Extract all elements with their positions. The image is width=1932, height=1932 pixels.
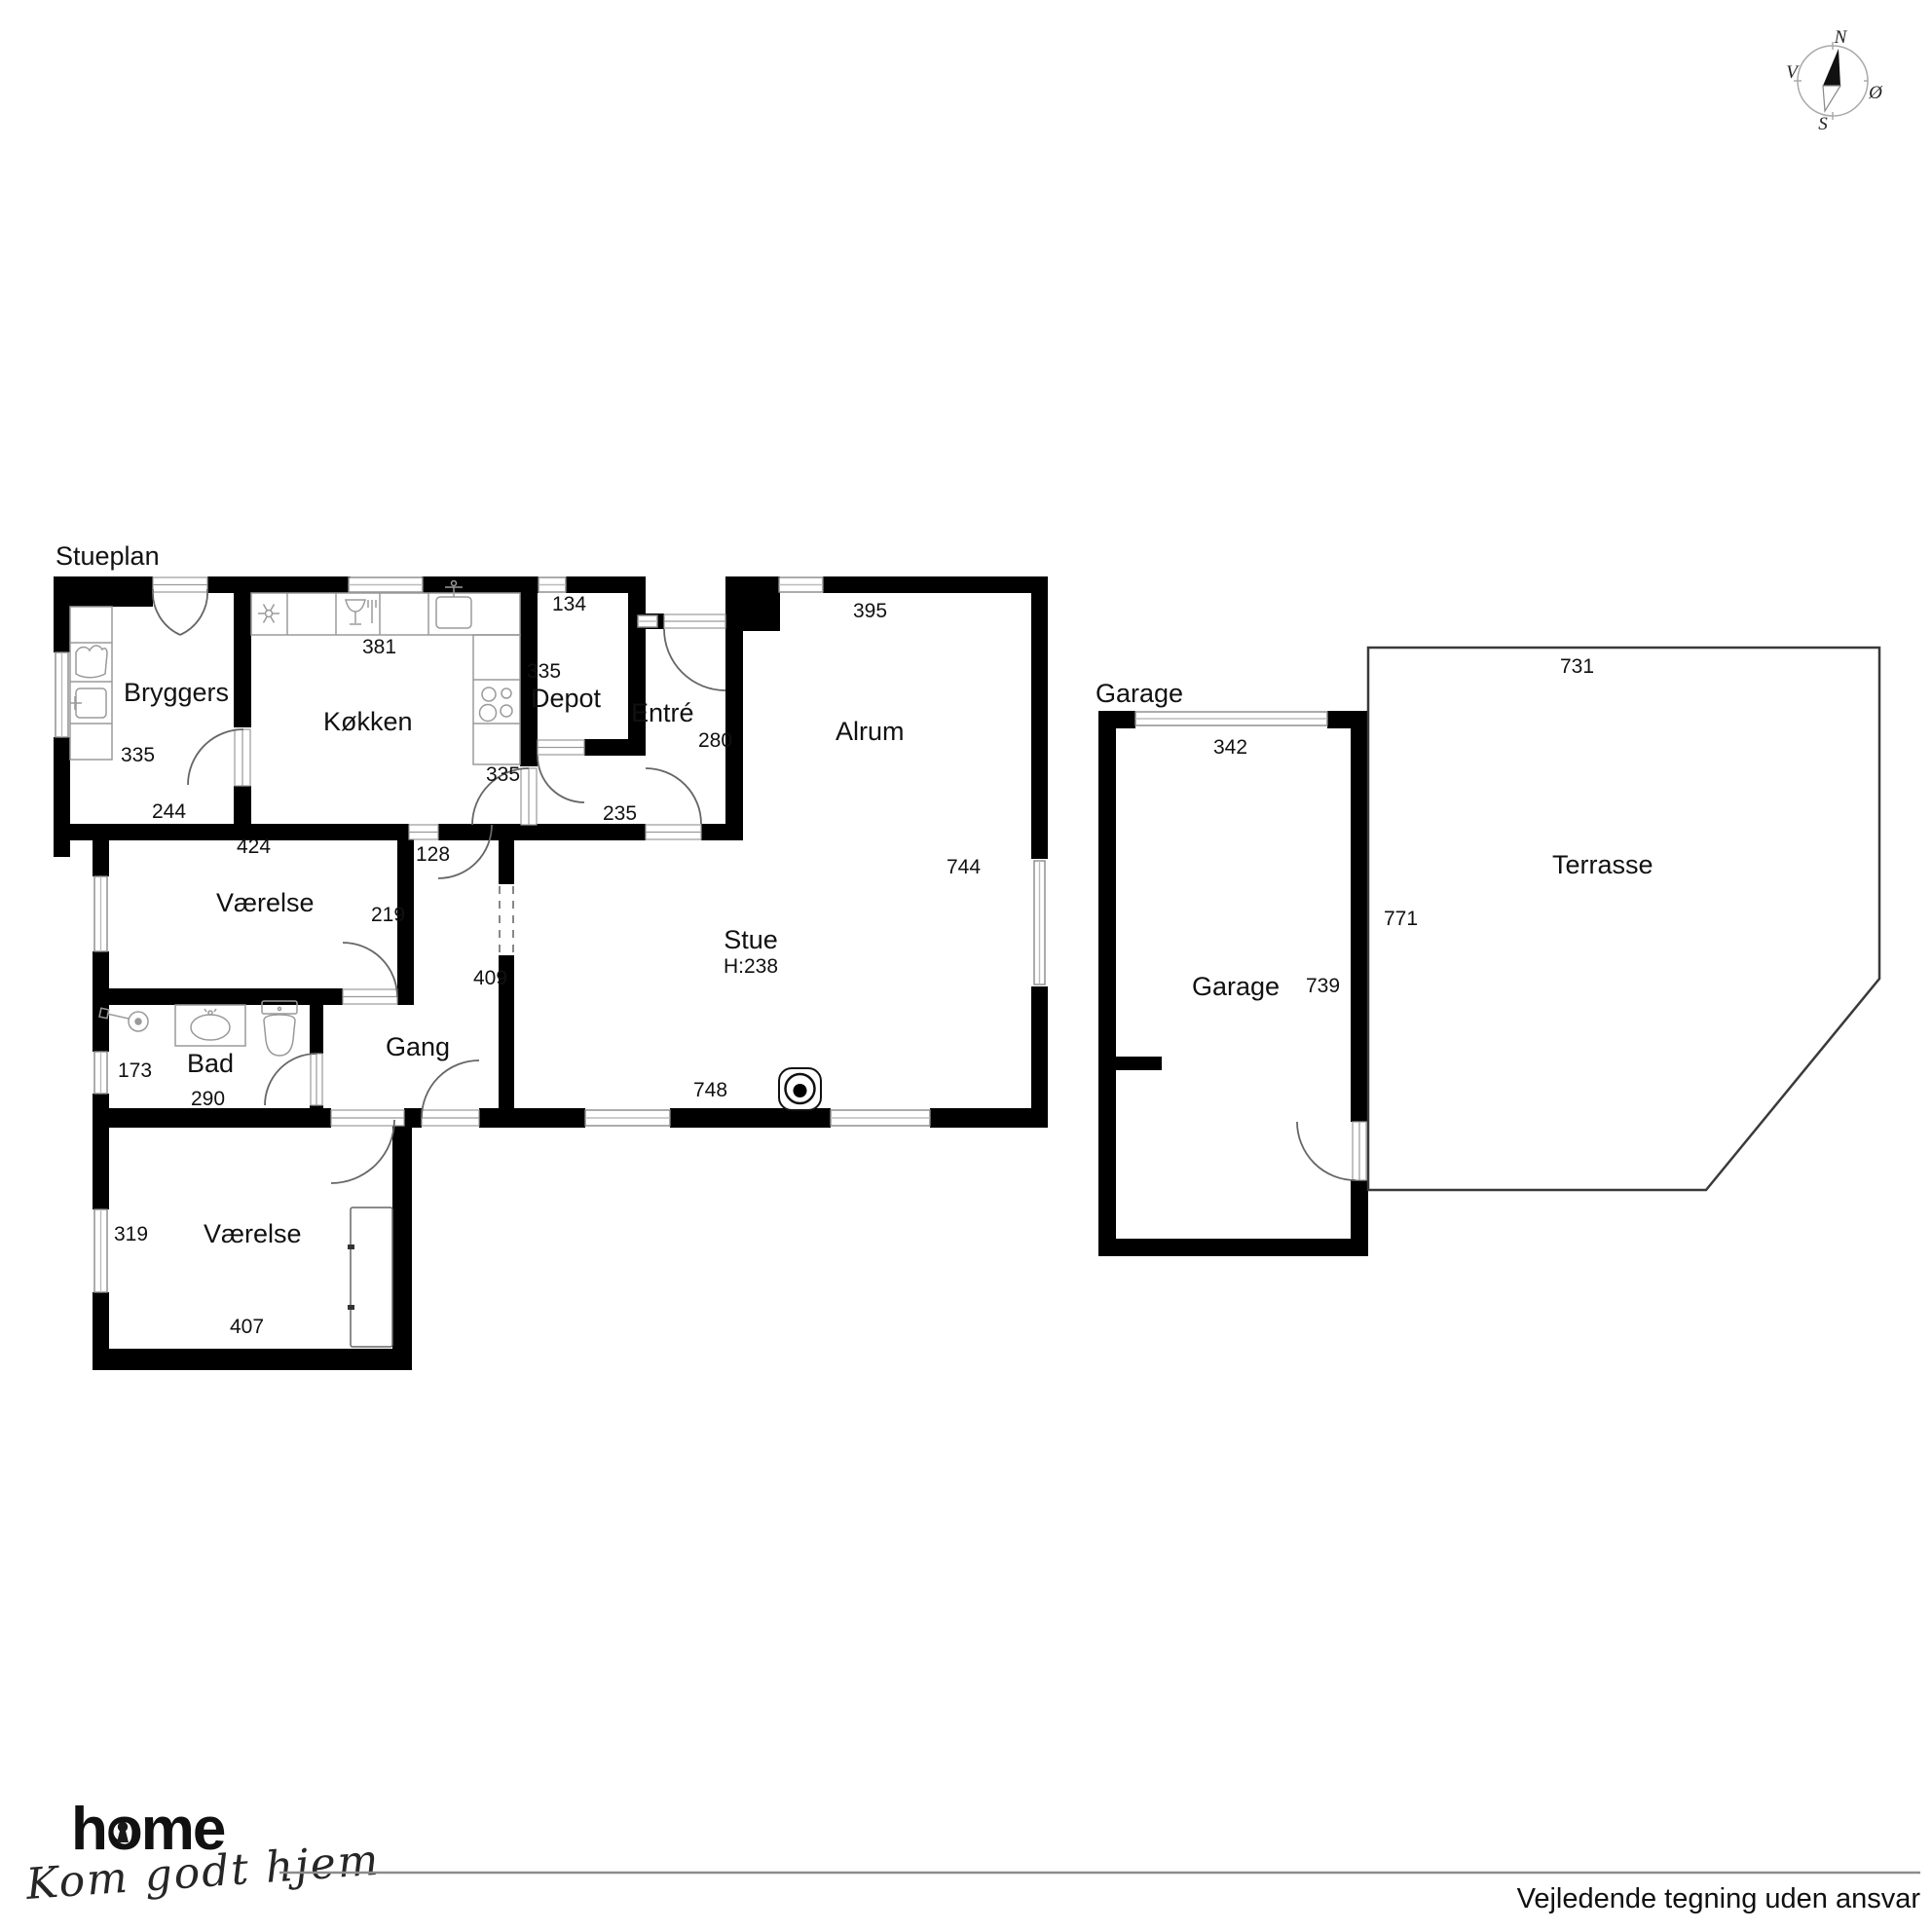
dishwasher-icon xyxy=(346,600,376,624)
kitchen-counter-top xyxy=(251,593,520,635)
door-leaf-bryggers xyxy=(235,729,250,786)
dim-vaerelse1-right: 219 xyxy=(371,904,405,926)
door-arc-entre-bottom xyxy=(646,768,701,824)
window-stue-bottom-right xyxy=(831,1110,930,1126)
room-label-depot: Depot xyxy=(531,684,602,713)
door-leaf-entre-bottom xyxy=(646,825,701,839)
dim-garage-top: 342 xyxy=(1213,736,1247,759)
window-vaerelse2-left xyxy=(94,1209,107,1292)
dim-vaerelse1-top: 424 xyxy=(237,836,271,858)
door-leaf-vaerelse2 xyxy=(331,1110,404,1126)
vanity-sink-icon xyxy=(175,1005,245,1046)
door-arc-front-right xyxy=(180,589,207,635)
compass-needle-south xyxy=(1823,86,1840,111)
dim-vaerelse2-bottom: 407 xyxy=(230,1316,264,1338)
door-leaf-kokken xyxy=(521,768,537,825)
floorplan-image: Stueplan Garage Bryggers 335 244 Køkken … xyxy=(0,0,1932,1932)
garage-section-title: Garage xyxy=(1096,679,1183,708)
compass: N V Ø S xyxy=(1786,27,1883,134)
labels: Stueplan Garage Bryggers 335 244 Køkken … xyxy=(56,541,1653,1338)
dim-garage-right: 771 xyxy=(1384,908,1418,930)
room-label-kokken: Køkken xyxy=(323,707,413,736)
page-title: Stueplan xyxy=(56,541,160,571)
dim-gang-door: 128 xyxy=(416,843,450,866)
door-leaf-garage xyxy=(1353,1122,1366,1180)
dim-stue-bottom: 748 xyxy=(693,1079,727,1101)
room-label-stue: Stue xyxy=(724,925,778,954)
window-alrum-top xyxy=(779,577,823,592)
dim-garage-width: 739 xyxy=(1306,975,1340,997)
compass-needle-north xyxy=(1823,49,1840,86)
window-vaerelse1-left xyxy=(94,876,107,951)
door-leaf-depot xyxy=(538,740,584,755)
window-stue-bottom-left xyxy=(585,1110,670,1126)
laundry-basket-icon xyxy=(76,646,107,678)
door-arc-vaerelse2 xyxy=(331,1120,394,1183)
door-leaf-gang-bottom xyxy=(422,1110,479,1126)
room-label-vaerelse1: Værelse xyxy=(216,888,315,917)
compass-s: S xyxy=(1818,114,1828,134)
dim-terrasse-top: 731 xyxy=(1560,655,1594,678)
dim-alrum-right: 744 xyxy=(947,856,981,878)
dim-kokken-door: 335 xyxy=(486,763,520,786)
window-alrum-right xyxy=(1034,861,1045,985)
stove-icon xyxy=(480,687,513,722)
garage-port xyxy=(1135,712,1327,725)
logo-keyhole-circle xyxy=(118,1822,128,1832)
compass-n: N xyxy=(1834,27,1848,48)
disclaimer-text: Vejledende tegning uden ansvar xyxy=(1517,1883,1921,1914)
door-arc-bad xyxy=(265,1054,316,1105)
door-arc-front-left xyxy=(153,589,180,635)
opening-dashed xyxy=(498,884,515,955)
dim-gang-right: 409 xyxy=(473,967,507,989)
door-arc-depot xyxy=(538,756,584,802)
door-arc-gang-bottom xyxy=(422,1060,479,1118)
dim-entre-right: 280 xyxy=(698,729,732,752)
dim-depot-left: 335 xyxy=(527,660,561,683)
window-kokken-top xyxy=(349,577,423,592)
window-bryggers-left xyxy=(56,652,68,737)
dim-entre-bottom: 235 xyxy=(603,802,637,825)
room-label-bad: Bad xyxy=(187,1049,234,1078)
toilet-icon xyxy=(262,1001,297,1056)
door-arc-garage xyxy=(1297,1122,1356,1180)
door-leaf-vaerelse1 xyxy=(343,989,397,1004)
door-leaf-gang-128 xyxy=(409,825,438,839)
dim-bryggers-left: 335 xyxy=(121,744,155,766)
stue-ceiling-height: H:238 xyxy=(724,955,778,978)
kitchen-counter-right xyxy=(473,635,520,764)
room-label-gang: Gang xyxy=(386,1032,450,1061)
wardrobe-icon xyxy=(348,1207,392,1347)
dim-alrum-top: 395 xyxy=(853,600,887,622)
dim-kokken-top: 381 xyxy=(362,636,396,658)
dim-vaerelse2-left: 319 xyxy=(114,1223,148,1245)
door-leaf-front xyxy=(153,577,207,592)
dim-bryggers-bottom: 244 xyxy=(152,800,186,823)
room-label-alrum: Alrum xyxy=(836,717,905,746)
room-label-bryggers: Bryggers xyxy=(124,678,229,707)
compass-o: Ø xyxy=(1868,83,1883,103)
dim-depot-top: 134 xyxy=(552,593,586,615)
extractor-fan-icon xyxy=(258,605,279,623)
floorplan-page: Stueplan Garage Bryggers 335 244 Køkken … xyxy=(0,0,1932,1932)
window-entre-top xyxy=(638,615,657,627)
door-leaves xyxy=(153,577,1366,1180)
dim-bad-left: 173 xyxy=(118,1059,152,1082)
room-label-terrasse: Terrasse xyxy=(1552,850,1653,879)
room-label-garage: Garage xyxy=(1192,972,1280,1001)
door-leaf-bad xyxy=(311,1054,322,1105)
room-label-entre: Entré xyxy=(631,698,694,727)
door-arc-entre-top xyxy=(664,629,725,690)
window-depot-top xyxy=(539,577,566,592)
terrasse-outline xyxy=(1368,648,1879,1190)
door-leaf-entre-top xyxy=(664,614,725,628)
room-label-vaerelse2: Værelse xyxy=(204,1219,302,1248)
bryggers-sink-icon xyxy=(70,688,106,718)
bryggers-counter xyxy=(70,607,112,760)
dim-bad-bottom: 290 xyxy=(191,1088,225,1110)
window-bad-left xyxy=(94,1052,107,1094)
fireplace-icon xyxy=(779,1068,821,1110)
